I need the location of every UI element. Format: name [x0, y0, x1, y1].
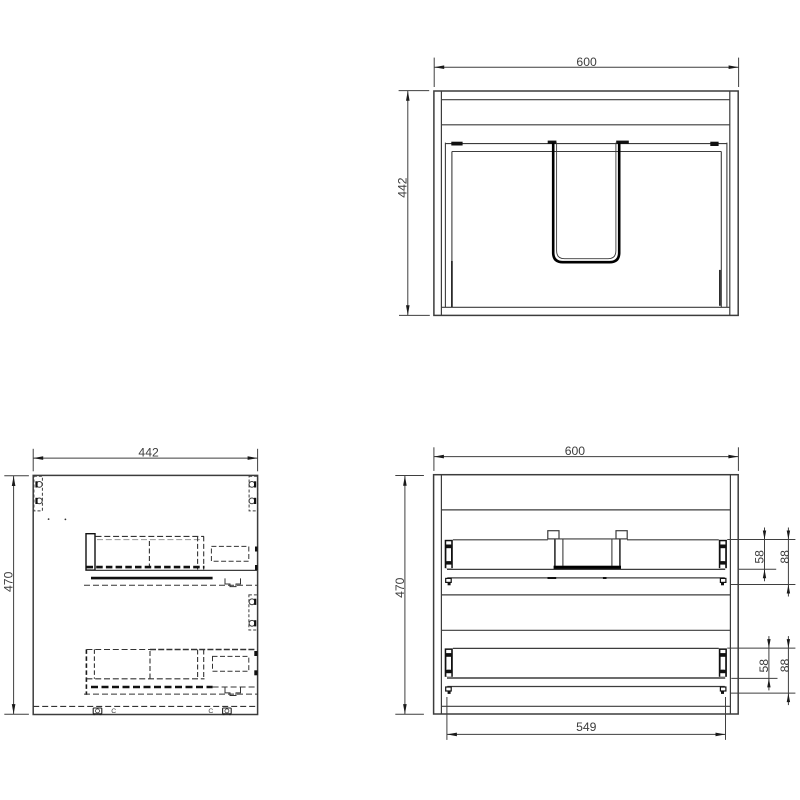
- svg-text:58: 58: [757, 659, 771, 673]
- svg-text:470: 470: [393, 577, 407, 598]
- svg-text:88: 88: [778, 659, 792, 673]
- svg-text:470: 470: [2, 571, 16, 592]
- svg-text:C: C: [208, 708, 213, 715]
- svg-text:442: 442: [396, 177, 410, 198]
- svg-text:600: 600: [565, 444, 586, 458]
- svg-text:58: 58: [752, 550, 766, 564]
- svg-text:549: 549: [576, 720, 597, 734]
- svg-text:88: 88: [778, 550, 792, 564]
- svg-text:C: C: [111, 708, 116, 715]
- svg-text:442: 442: [138, 445, 159, 459]
- svg-text:600: 600: [576, 55, 597, 69]
